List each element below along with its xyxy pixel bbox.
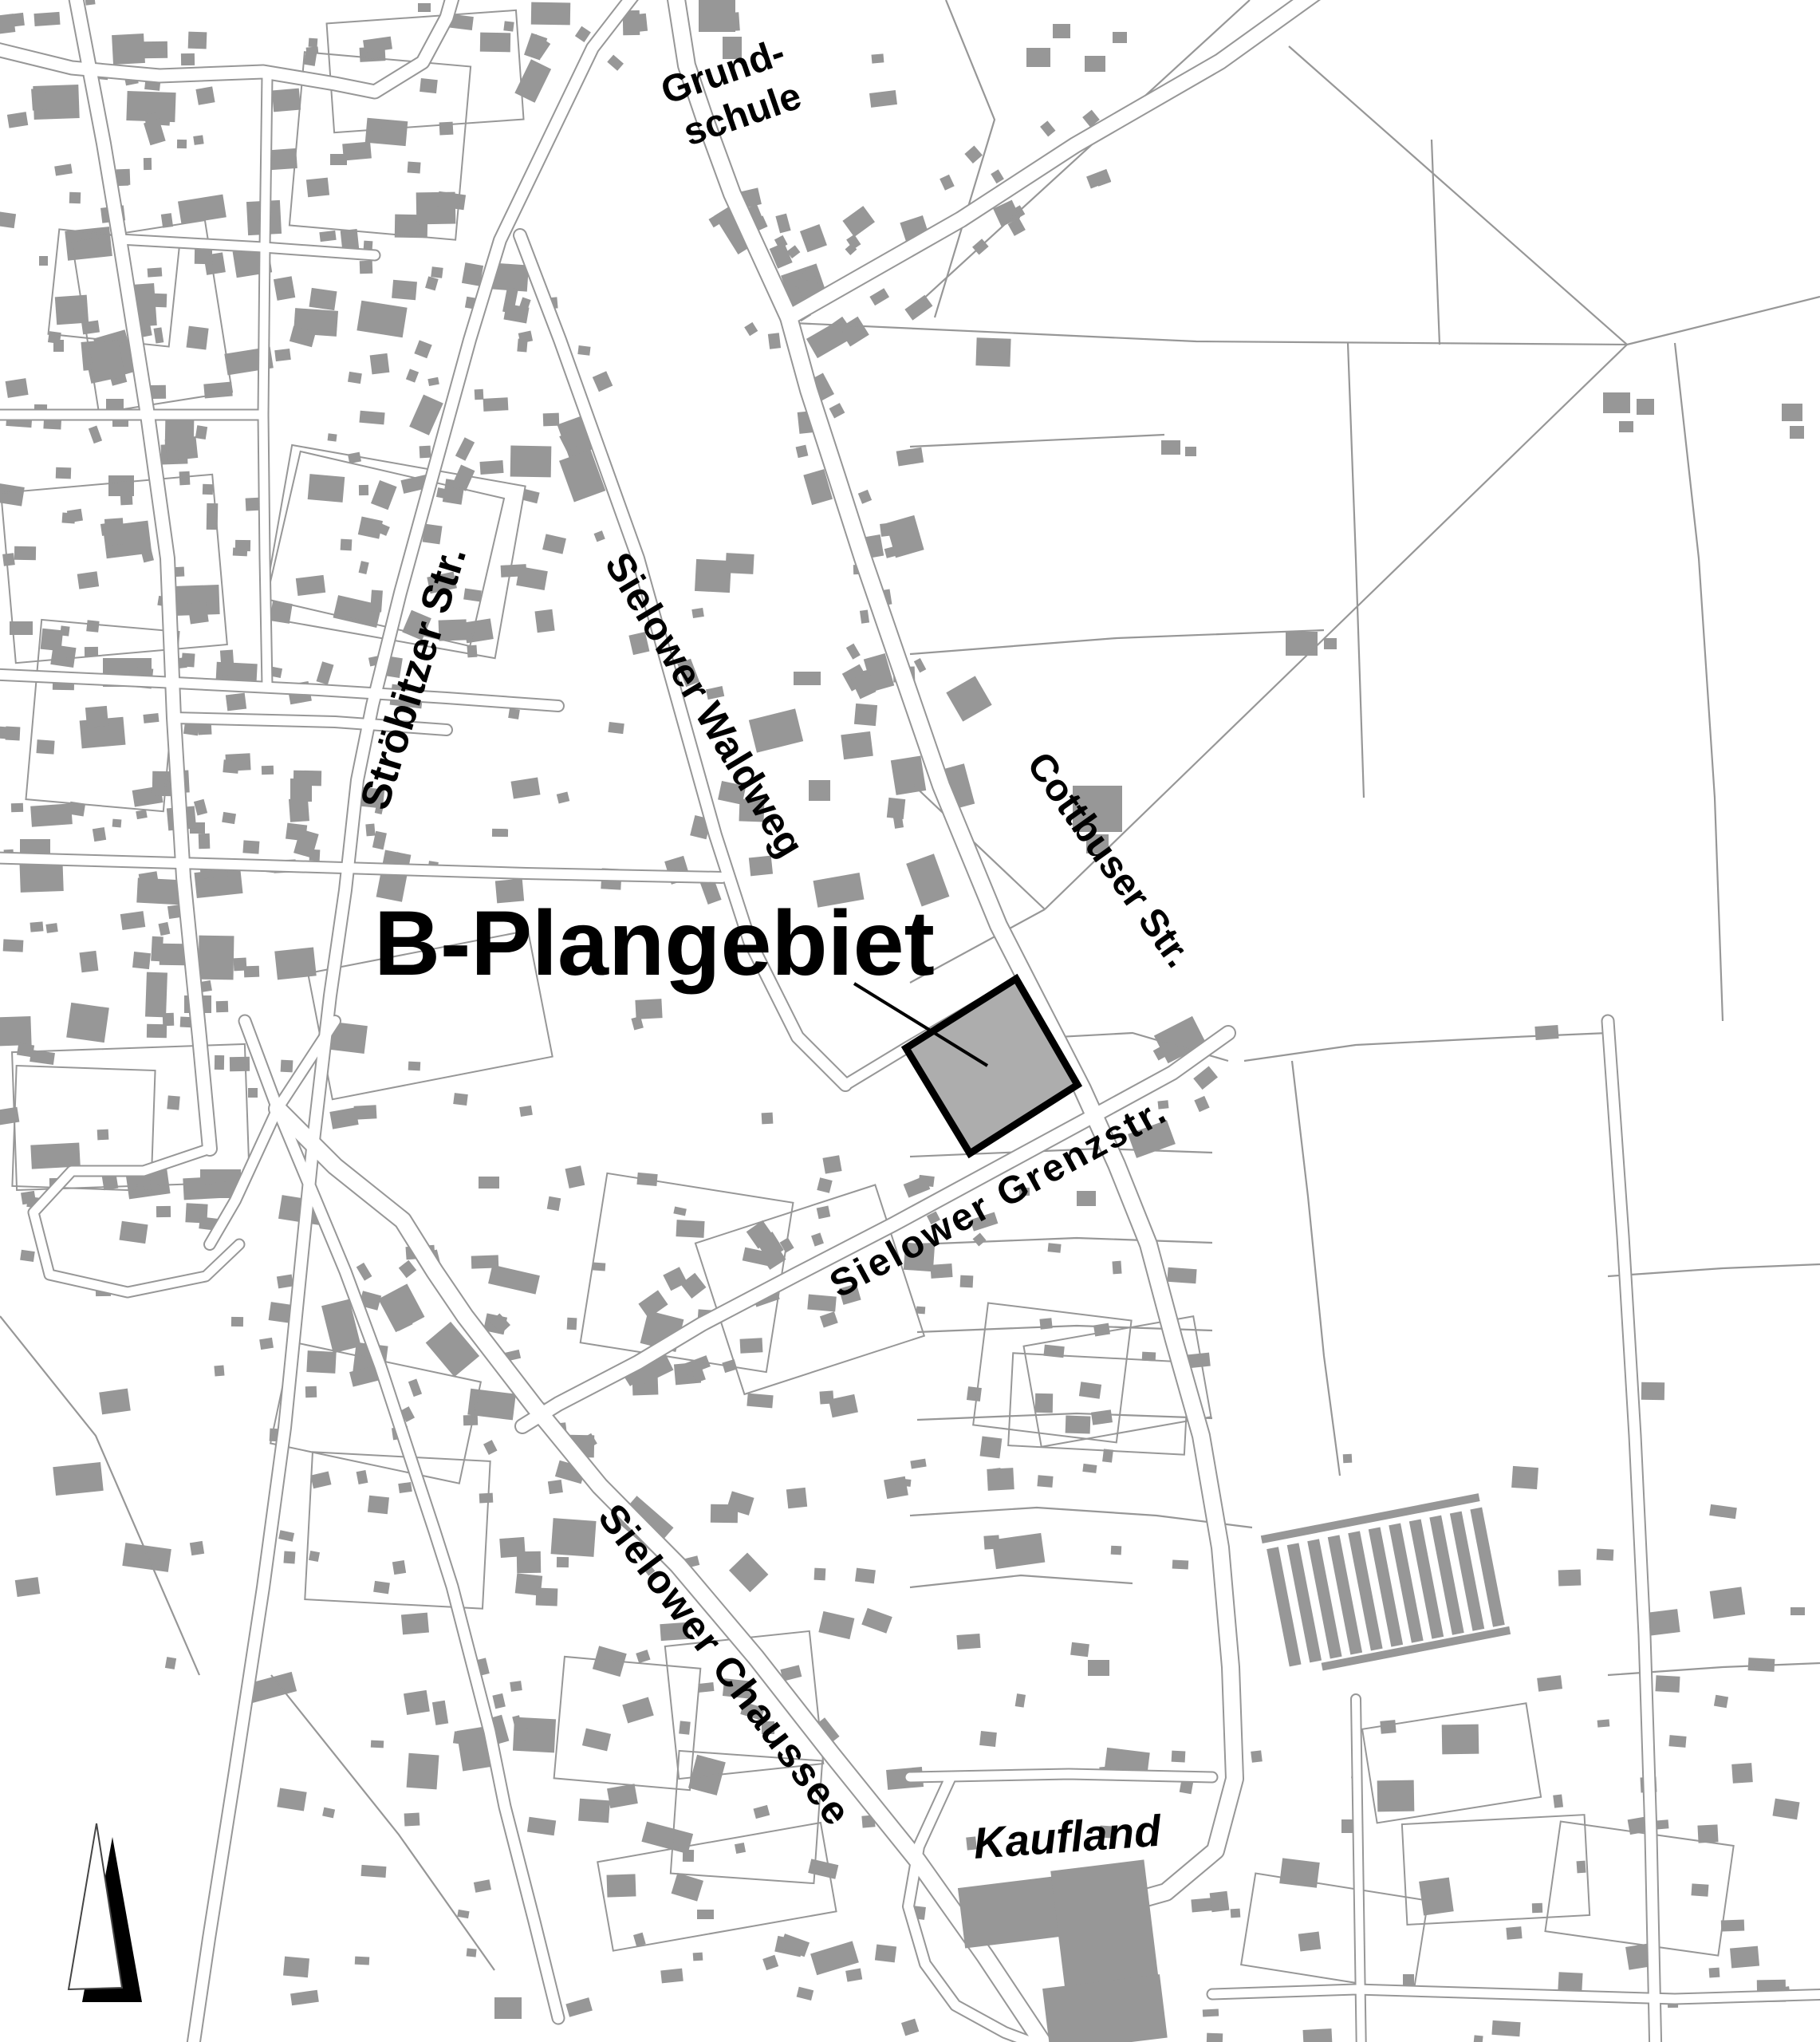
svg-text:B-Plangebiet: B-Plangebiet <box>374 893 935 995</box>
